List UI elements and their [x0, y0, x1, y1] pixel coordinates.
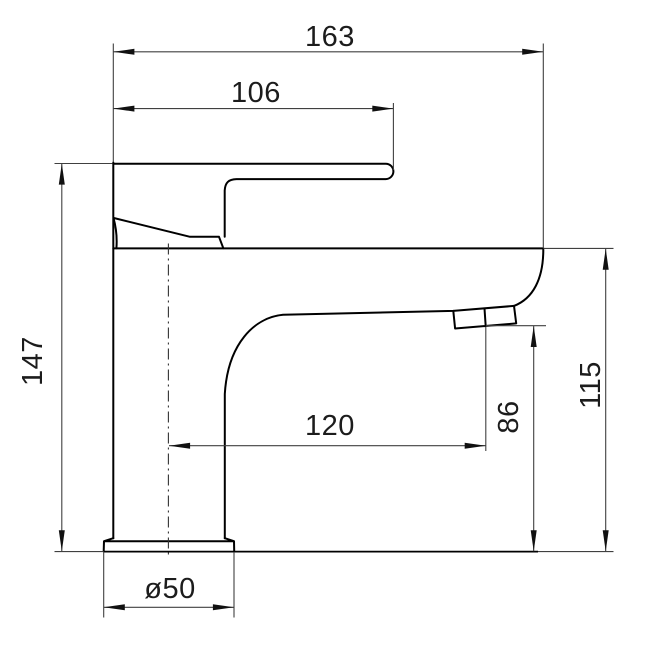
dimension-label-163: 163	[305, 21, 355, 53]
dimension-spout-reach: 120	[169, 327, 486, 451]
dimension-handle-length: 106	[113, 77, 393, 170]
dimension-total-height: 147	[17, 164, 113, 552]
dimension-total-width: 163	[113, 21, 543, 248]
dimension-label-86: 86	[493, 400, 525, 433]
technical-drawing-canvas: 163 106 147 115 86 120 ø50	[0, 0, 655, 648]
handle-lever	[113, 164, 393, 237]
dimension-body-height: 115	[538, 248, 614, 551]
dimension-outlet-height: 86	[486, 326, 546, 552]
dimension-label-120: 120	[305, 410, 355, 442]
dimension-label-115: 115	[575, 361, 607, 409]
spout-underside	[225, 306, 514, 538]
faucet-dimension-drawing: 163 106 147 115 86 120 ø50	[0, 0, 655, 648]
dimension-base-diameter: ø50	[104, 552, 234, 618]
dimension-label-106: 106	[231, 77, 281, 109]
dimension-label-diameter-50: ø50	[144, 573, 195, 605]
dimension-label-147: 147	[17, 336, 49, 386]
faucet-outline	[104, 163, 544, 557]
spout-nose-curve	[514, 250, 543, 306]
